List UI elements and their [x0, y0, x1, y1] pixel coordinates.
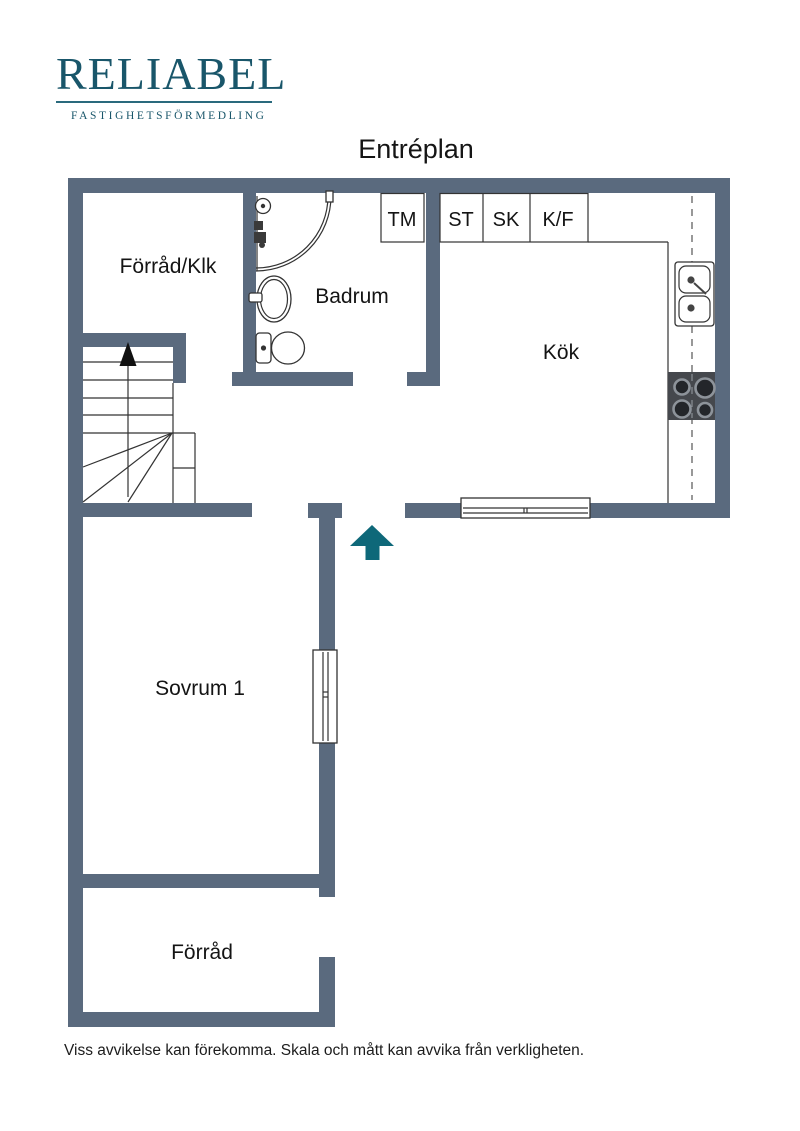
wall-badrum-bottom-left	[232, 372, 353, 386]
wall-badrum-kok	[426, 193, 440, 386]
floorplan-page: RELIABEL FASTIGHETSFÖRMEDLING Entréplan	[0, 0, 800, 1131]
staircase	[83, 362, 195, 503]
counter-line	[588, 242, 668, 503]
room-label-forrad: Förråd	[171, 941, 233, 964]
wall-top	[68, 178, 730, 193]
walls	[68, 178, 730, 1027]
wall-stairs-stub	[173, 333, 186, 383]
wall-forrad-right-upper	[319, 874, 335, 897]
disclaimer-text: Viss avvikelse kan förekomma. Skala och …	[64, 1042, 584, 1060]
wall-left	[68, 178, 83, 1027]
room-label-forrad-klk: Förråd/Klk	[120, 255, 217, 278]
window-kitchen	[461, 498, 590, 518]
toilet-icon	[256, 332, 305, 364]
wall-bedroom-forrad-divider	[83, 874, 335, 888]
cabinet-label-st: ST	[448, 209, 474, 231]
shower-icon	[254, 191, 333, 271]
cabinet-label-kf: K/F	[542, 209, 573, 231]
room-label-kok: Kök	[543, 341, 580, 364]
cabinet-label-tm: TM	[388, 209, 417, 231]
stove-icon	[668, 372, 715, 420]
kitchen-sink-icon	[675, 262, 714, 326]
wall-forrad-right-lower	[319, 957, 335, 1013]
wall-bedroom-top	[68, 503, 252, 517]
entrance-arrow-icon	[350, 525, 394, 560]
room-label-sovrum1: Sovrum 1	[155, 677, 245, 700]
wall-bottom	[68, 1012, 335, 1027]
wall-right	[715, 178, 730, 518]
room-label-badrum: Badrum	[315, 285, 389, 308]
wall-stairs	[83, 333, 186, 347]
window-bedroom	[313, 650, 337, 743]
floorplan-svg: Förråd/Klk Badrum Kök Sovrum 1 Förråd TM…	[0, 0, 800, 1131]
cabinet-label-sk: SK	[493, 209, 520, 231]
